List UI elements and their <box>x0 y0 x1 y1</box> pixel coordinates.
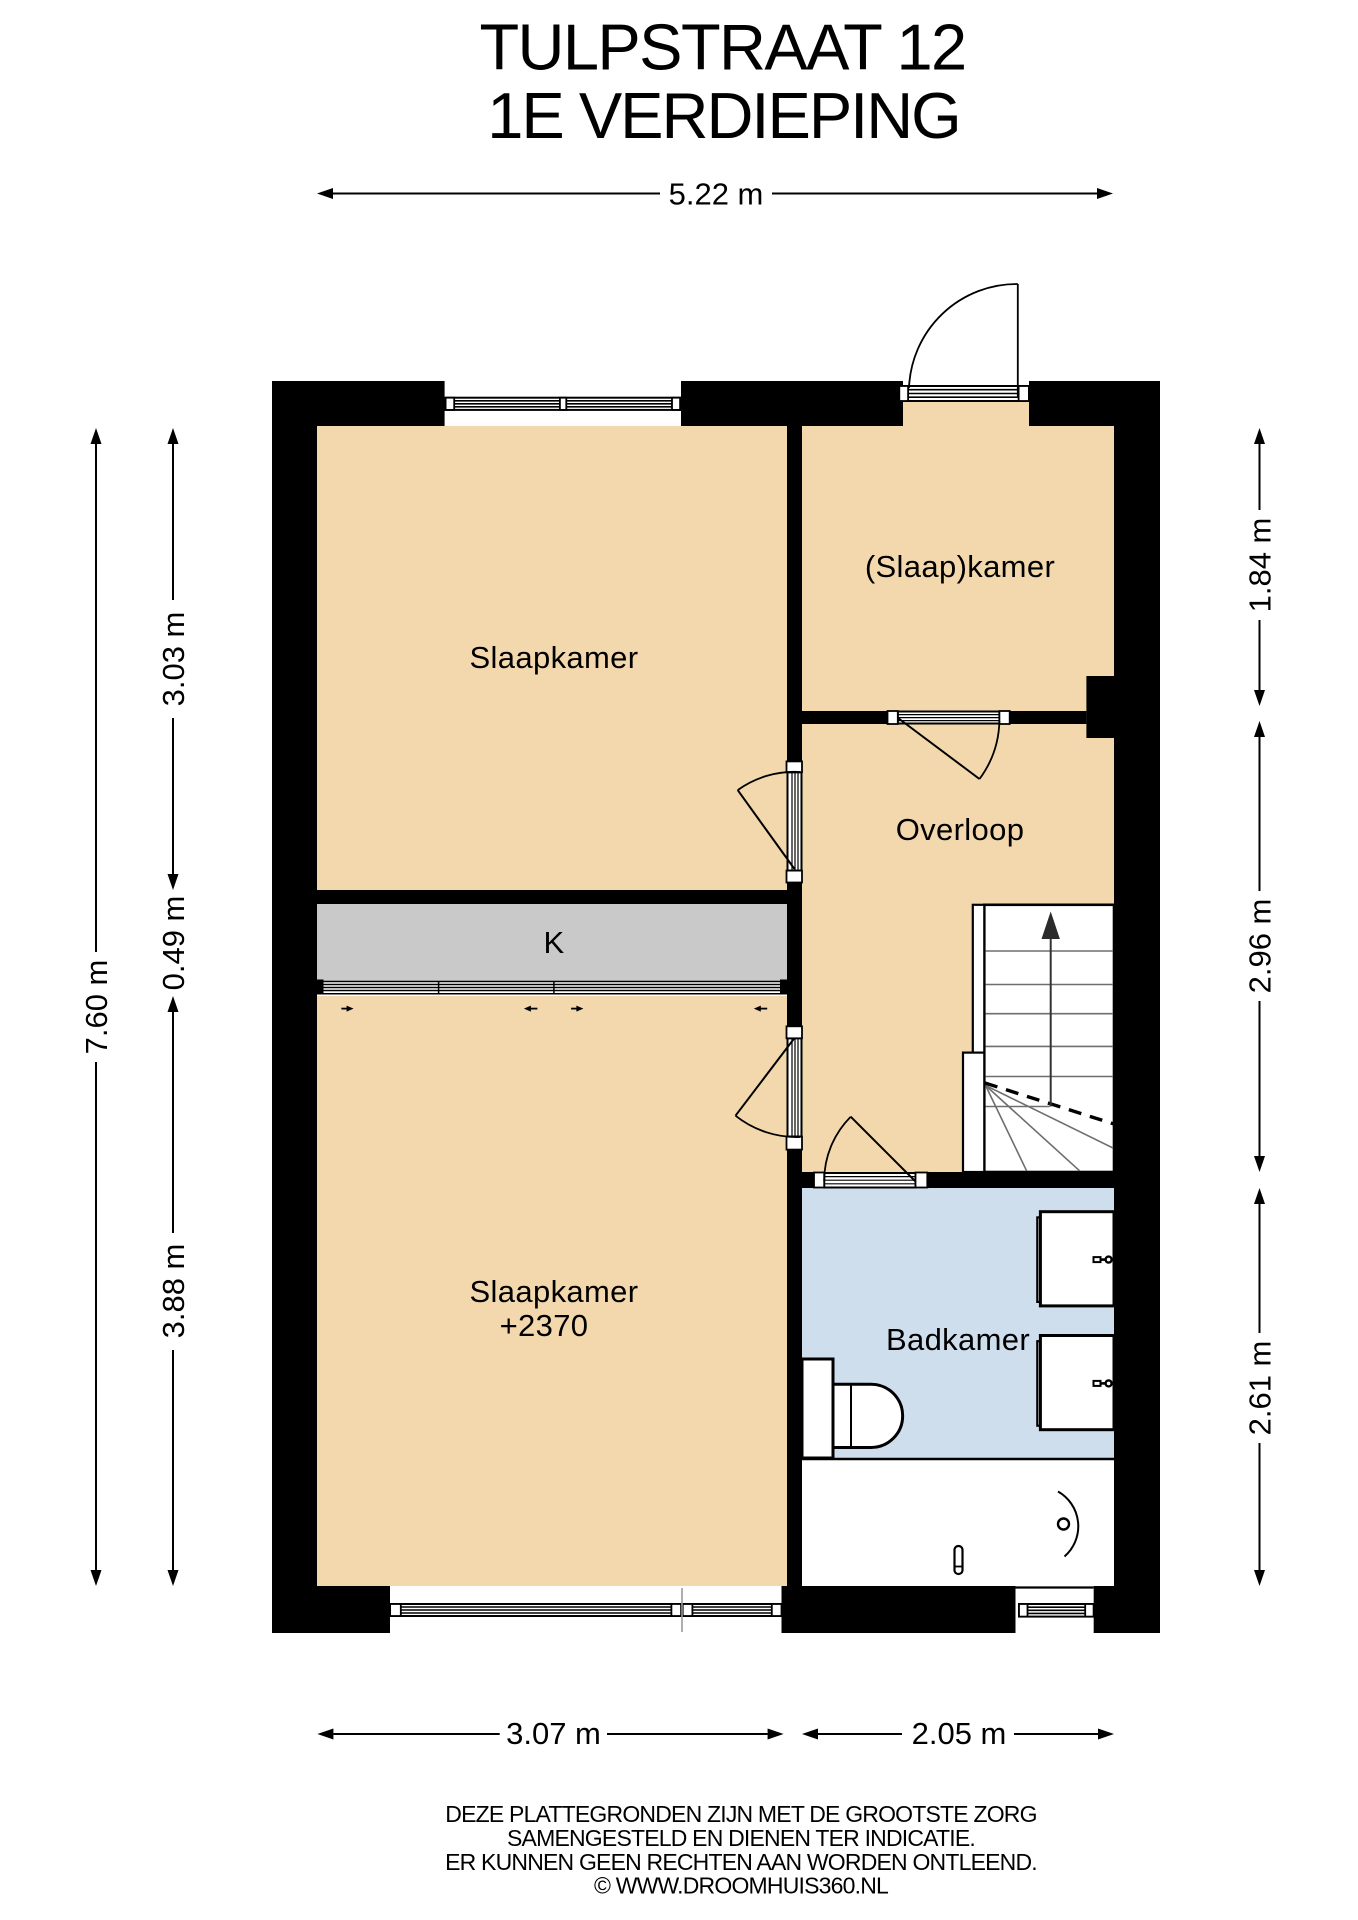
svg-text:K: K <box>543 925 564 960</box>
svg-text:3.88 m: 3.88 m <box>156 1244 191 1339</box>
svg-text:3.03 m: 3.03 m <box>156 612 191 707</box>
svg-text:2.05 m: 2.05 m <box>912 1716 1007 1751</box>
svg-text:Slaapkamer: Slaapkamer <box>470 1274 639 1309</box>
svg-text:2.61 m: 2.61 m <box>1243 1341 1278 1436</box>
svg-text:+2370: +2370 <box>500 1308 589 1343</box>
svg-text:Slaapkamer: Slaapkamer <box>470 640 639 675</box>
svg-text:7.60 m: 7.60 m <box>79 960 114 1055</box>
svg-text:Badkamer: Badkamer <box>886 1322 1030 1357</box>
svg-text:Overloop: Overloop <box>896 812 1025 847</box>
svg-text:3.07 m: 3.07 m <box>506 1716 601 1751</box>
svg-text:5.22 m: 5.22 m <box>669 177 764 212</box>
svg-text:1E VERDIEPING: 1E VERDIEPING <box>487 79 959 152</box>
svg-text:(Slaap)kamer: (Slaap)kamer <box>865 549 1055 584</box>
svg-text:© WWW.DROOMHUIS360.NL: © WWW.DROOMHUIS360.NL <box>594 1873 889 1899</box>
svg-text:2.96 m: 2.96 m <box>1243 899 1278 994</box>
svg-text:TULPSTRAAT 12: TULPSTRAAT 12 <box>479 11 965 84</box>
svg-text:SAMENGESTELD EN DIENEN TER IND: SAMENGESTELD EN DIENEN TER INDICATIE. <box>507 1825 975 1851</box>
svg-text:ER KUNNEN GEEN RECHTEN AAN WOR: ER KUNNEN GEEN RECHTEN AAN WORDEN ONTLEE… <box>445 1849 1037 1875</box>
svg-text:1.84 m: 1.84 m <box>1243 518 1278 613</box>
svg-text:0.49 m: 0.49 m <box>156 896 191 991</box>
svg-text:DEZE PLATTEGRONDEN ZIJN MET DE: DEZE PLATTEGRONDEN ZIJN MET DE GROOTSTE … <box>445 1801 1036 1827</box>
